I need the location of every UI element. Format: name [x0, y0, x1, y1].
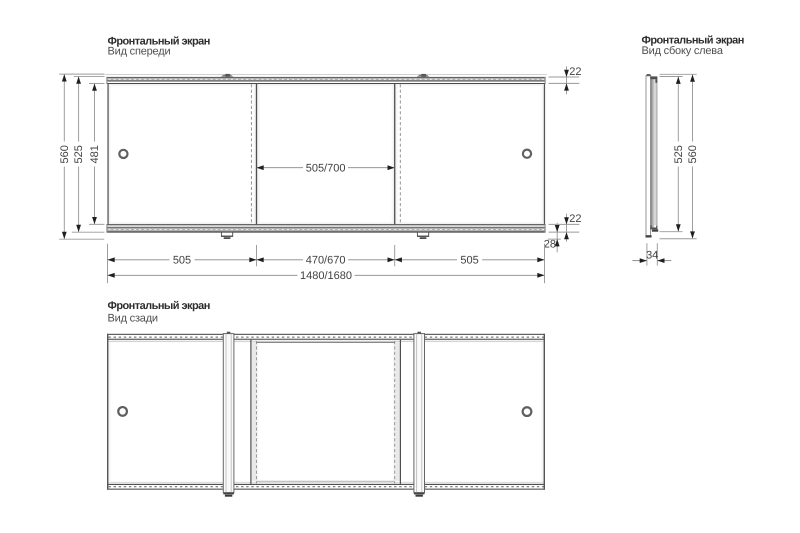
svg-text:505: 505	[460, 255, 478, 267]
svg-text:Вид сбоку слева: Вид сбоку слева	[642, 45, 724, 57]
svg-text:34: 34	[646, 250, 658, 262]
svg-text:Вид сзади: Вид сзади	[108, 313, 158, 325]
svg-text:560: 560	[687, 145, 699, 163]
svg-text:525: 525	[73, 145, 85, 163]
svg-text:22: 22	[569, 66, 581, 78]
svg-text:Вид спереди: Вид спереди	[108, 46, 171, 58]
svg-text:505: 505	[173, 255, 191, 267]
svg-text:28: 28	[544, 239, 556, 251]
svg-text:Фронтальный экран: Фронтальный экран	[108, 300, 210, 312]
svg-text:560: 560	[59, 145, 71, 163]
svg-text:1480/1680: 1480/1680	[300, 270, 352, 282]
svg-text:505/700: 505/700	[306, 163, 346, 175]
svg-text:470/670: 470/670	[306, 255, 346, 267]
svg-text:525: 525	[673, 145, 685, 163]
svg-text:481: 481	[89, 145, 101, 163]
svg-text:22: 22	[569, 213, 581, 225]
